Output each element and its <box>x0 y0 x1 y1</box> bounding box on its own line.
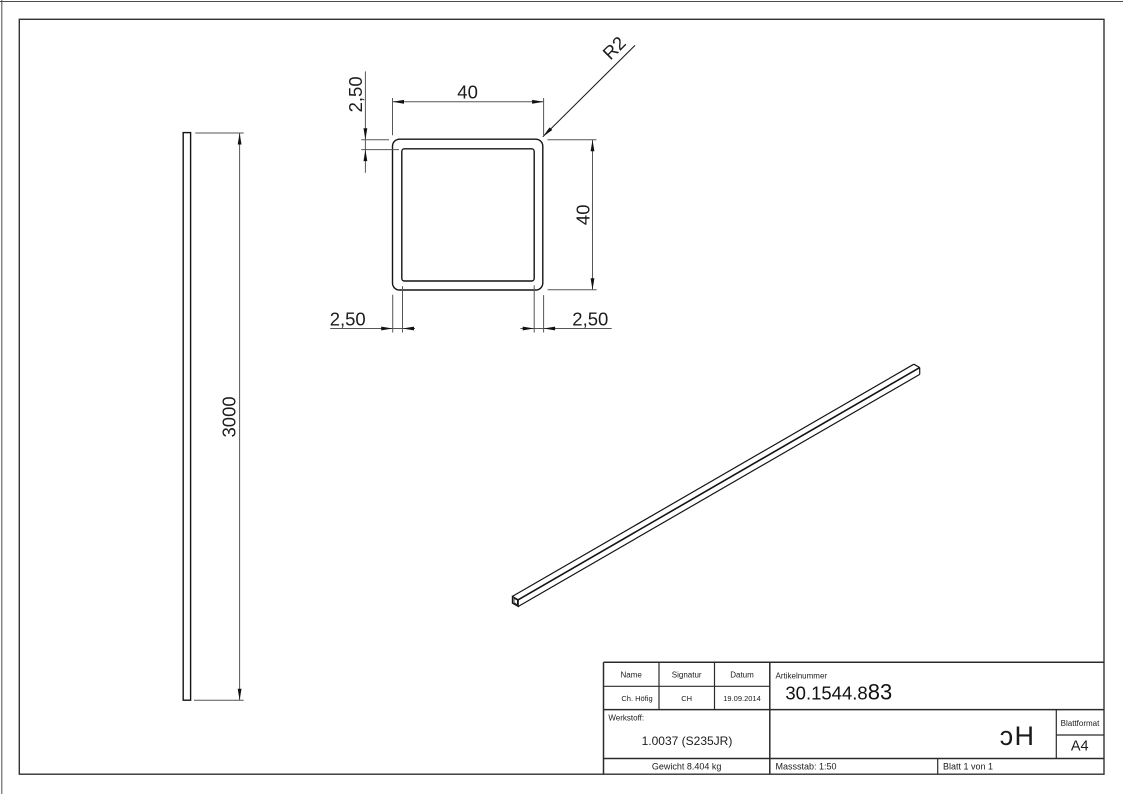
svg-text:2,50: 2,50 <box>572 308 608 329</box>
svg-text:CH: CH <box>681 694 692 703</box>
svg-text:Gewicht 8.404 kg: Gewicht 8.404 kg <box>652 762 722 772</box>
svg-text:Massstab: 1:50: Massstab: 1:50 <box>776 762 837 772</box>
svg-text:Ch. Höfig: Ch. Höfig <box>621 694 652 703</box>
svg-text:19.09.2014: 19.09.2014 <box>723 694 761 703</box>
svg-text:2,50: 2,50 <box>330 308 366 329</box>
svg-text:A4: A4 <box>1071 739 1089 755</box>
svg-text:40: 40 <box>572 205 593 226</box>
svg-text:H: H <box>1015 721 1035 751</box>
svg-text:Datum: Datum <box>730 671 754 680</box>
svg-text:c: c <box>1000 721 1014 751</box>
svg-text:Blatt 1 von 1: Blatt 1 von 1 <box>943 762 993 772</box>
svg-text:3000: 3000 <box>219 396 240 437</box>
svg-text:Name: Name <box>621 671 643 680</box>
svg-text:Signatur: Signatur <box>672 671 702 680</box>
svg-text:Blattformat: Blattformat <box>1061 719 1100 728</box>
svg-text:Werkstoff:: Werkstoff: <box>608 714 644 723</box>
svg-text:40: 40 <box>457 81 478 102</box>
svg-text:2,50: 2,50 <box>345 76 366 112</box>
svg-text:30.1544.883: 30.1544.883 <box>785 679 892 704</box>
svg-text:1.0037 (S235JR): 1.0037 (S235JR) <box>642 734 733 748</box>
svg-text:Artikelnummer: Artikelnummer <box>776 672 828 681</box>
